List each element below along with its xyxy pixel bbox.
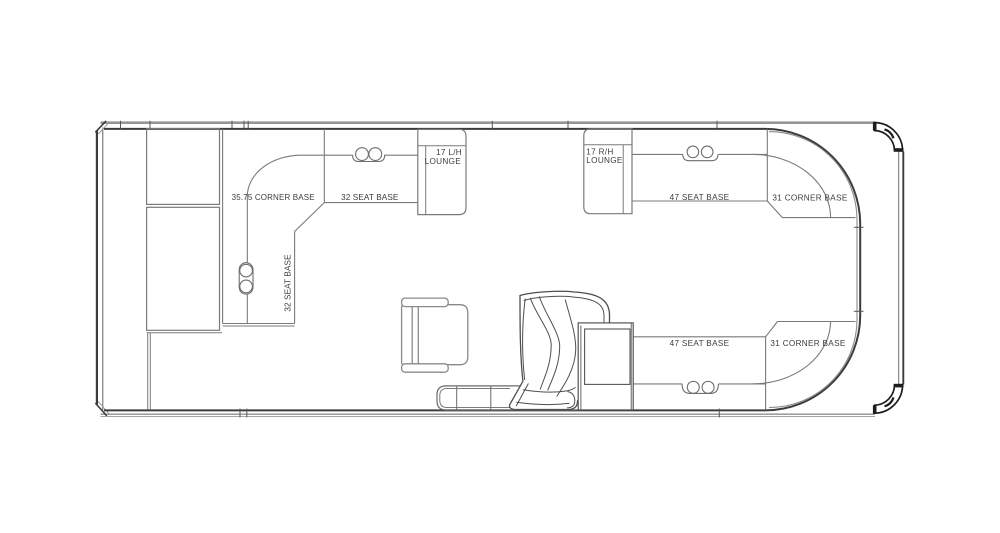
svg-text:35.75 CORNER BASE: 35.75 CORNER BASE <box>232 193 315 202</box>
svg-text:31 CORNER BASE: 31 CORNER BASE <box>770 339 845 348</box>
svg-text:47 SEAT BASE: 47 SEAT BASE <box>670 193 730 202</box>
svg-text:32 SEAT BASE: 32 SEAT BASE <box>283 254 292 312</box>
svg-text:LOUNGE: LOUNGE <box>586 156 623 165</box>
svg-text:17 L/H: 17 L/H <box>436 148 462 157</box>
svg-text:47 SEAT BASE: 47 SEAT BASE <box>670 339 730 348</box>
svg-text:17 R/H: 17 R/H <box>586 147 613 156</box>
svg-text:31 CORNER BASE: 31 CORNER BASE <box>772 194 847 203</box>
svg-text:32 SEAT BASE: 32 SEAT BASE <box>341 193 399 202</box>
svg-text:LOUNGE: LOUNGE <box>425 157 462 166</box>
